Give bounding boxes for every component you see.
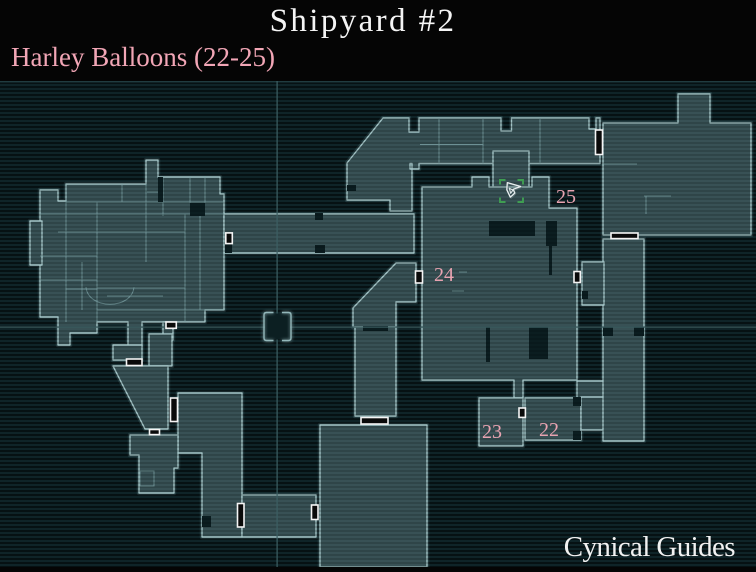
svg-text:Shipyard #2: Shipyard #2 <box>270 3 457 39</box>
svg-text:24: 24 <box>434 264 454 286</box>
svg-text:Harley Balloons (22-25): Harley Balloons (22-25) <box>11 42 275 72</box>
svg-text:Cynical Guides: Cynical Guides <box>564 531 736 563</box>
svg-text:23: 23 <box>482 421 502 443</box>
svg-text:22: 22 <box>539 419 559 441</box>
svg-text:25: 25 <box>556 186 576 208</box>
